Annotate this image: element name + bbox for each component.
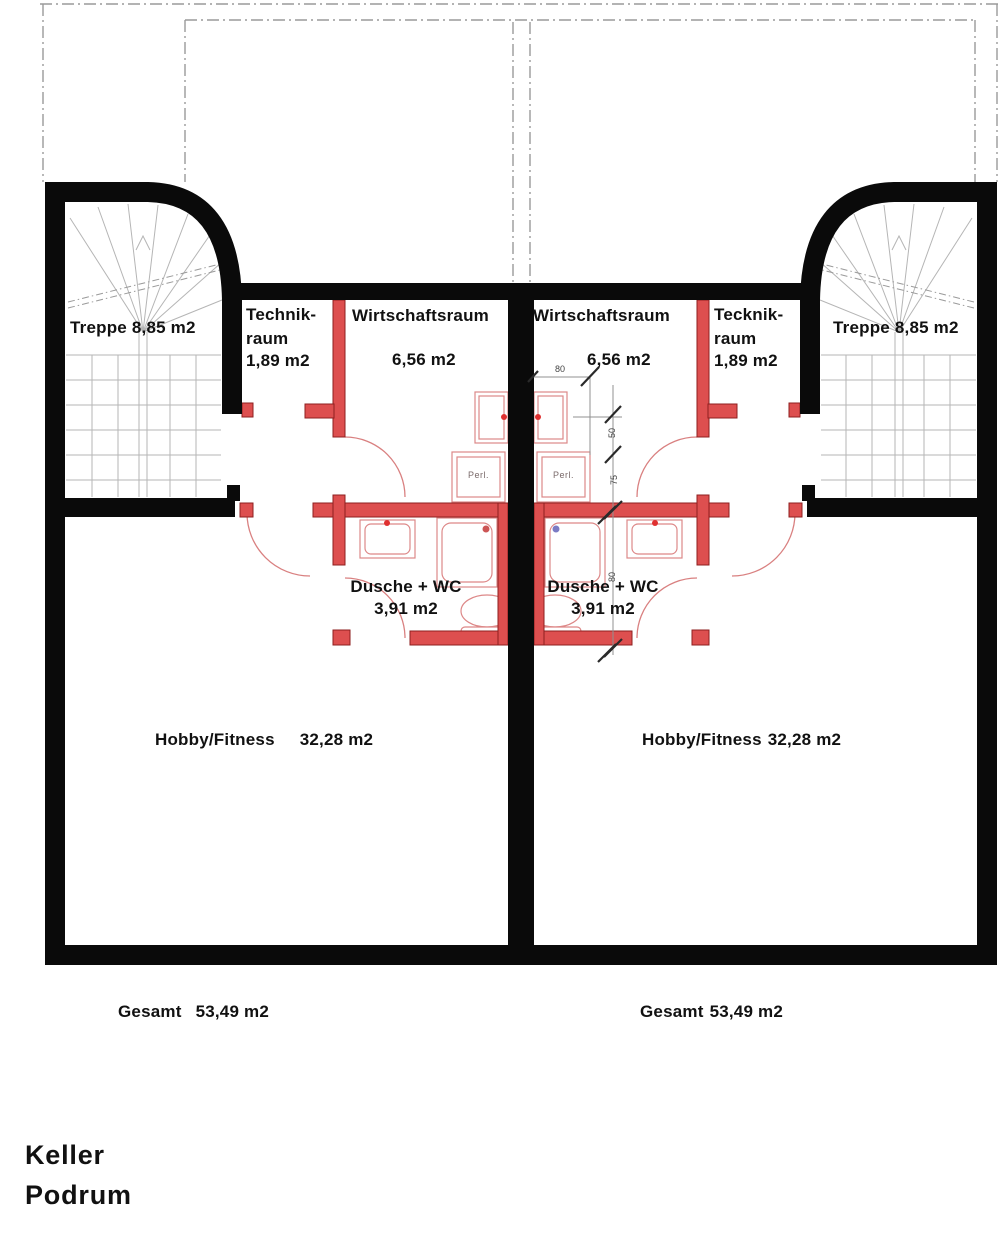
room-label-dusche-left: Dusche + WC (340, 577, 472, 597)
hobby-left-area: 32,28 m2 (300, 730, 373, 750)
room-area-dusche-left: 3,91 m2 (340, 599, 472, 619)
room-label-technik-left-line2: raum (246, 329, 288, 349)
room-label-technik-right-line1: Tecknik- (714, 305, 783, 325)
room-label-hobby-right: Hobby/Fitness 32,28 m2 (642, 730, 841, 750)
room-label-hobby-left: Hobby/Fitness 32,28 m2 (155, 730, 373, 750)
plan-title-line2: Podrum (25, 1180, 132, 1211)
washer-label-right: Perl. (537, 470, 590, 480)
room-label-wirtschaft-right: Wirtschaftsraum (533, 306, 670, 326)
total-area-left: Gesamt 53,49 m2 (118, 1002, 269, 1022)
upper-floor-outline (40, 4, 1000, 283)
gesamt-left-area: 53,49 m2 (196, 1002, 269, 1022)
room-label-treppe-left: Treppe 8,85 m2 (70, 318, 196, 338)
hobby-left-name: Hobby/Fitness (155, 730, 275, 750)
room-label-technik-left-line1: Technik- (246, 305, 316, 325)
hobby-right-name: Hobby/Fitness (642, 730, 762, 750)
shower-marker-right (553, 526, 560, 533)
room-area-technik-right: 1,89 m2 (714, 351, 778, 371)
washer-label-left: Perl. (452, 470, 505, 480)
hobby-right-area: 32,28 m2 (768, 730, 841, 750)
room-label-wirtschaft-left: Wirtschaftsraum (352, 306, 489, 326)
room-area-wirtschaft-right: 6,56 m2 (587, 350, 651, 370)
dimension-value-50: 50 (603, 422, 621, 444)
plan-title-line1: Keller (25, 1140, 105, 1171)
total-area-right: Gesamt 53,49 m2 (640, 1002, 783, 1022)
shower-marker-left (483, 526, 490, 533)
dimension-value-80-top: 80 (546, 363, 574, 375)
room-area-wirtschaft-left: 6,56 m2 (392, 350, 456, 370)
room-area-dusche-right: 3,91 m2 (537, 599, 669, 619)
floor-plan-page: Treppe 8,85 m2 Technik- raum 1,89 m2 Wir… (0, 0, 1000, 1260)
room-area-technik-left: 1,89 m2 (246, 351, 310, 371)
floor-plan-drawing (0, 0, 1000, 1260)
gesamt-right-area: 53,49 m2 (710, 1002, 783, 1022)
room-label-treppe-right: Treppe 8,85 m2 (833, 318, 959, 338)
gesamt-right-name: Gesamt (640, 1002, 704, 1022)
room-label-technik-right-line2: raum (714, 329, 756, 349)
dimension-value-80-low: 80 (603, 566, 621, 588)
dimension-value-75: 75 (605, 469, 623, 491)
gesamt-left-name: Gesamt (118, 1002, 182, 1022)
